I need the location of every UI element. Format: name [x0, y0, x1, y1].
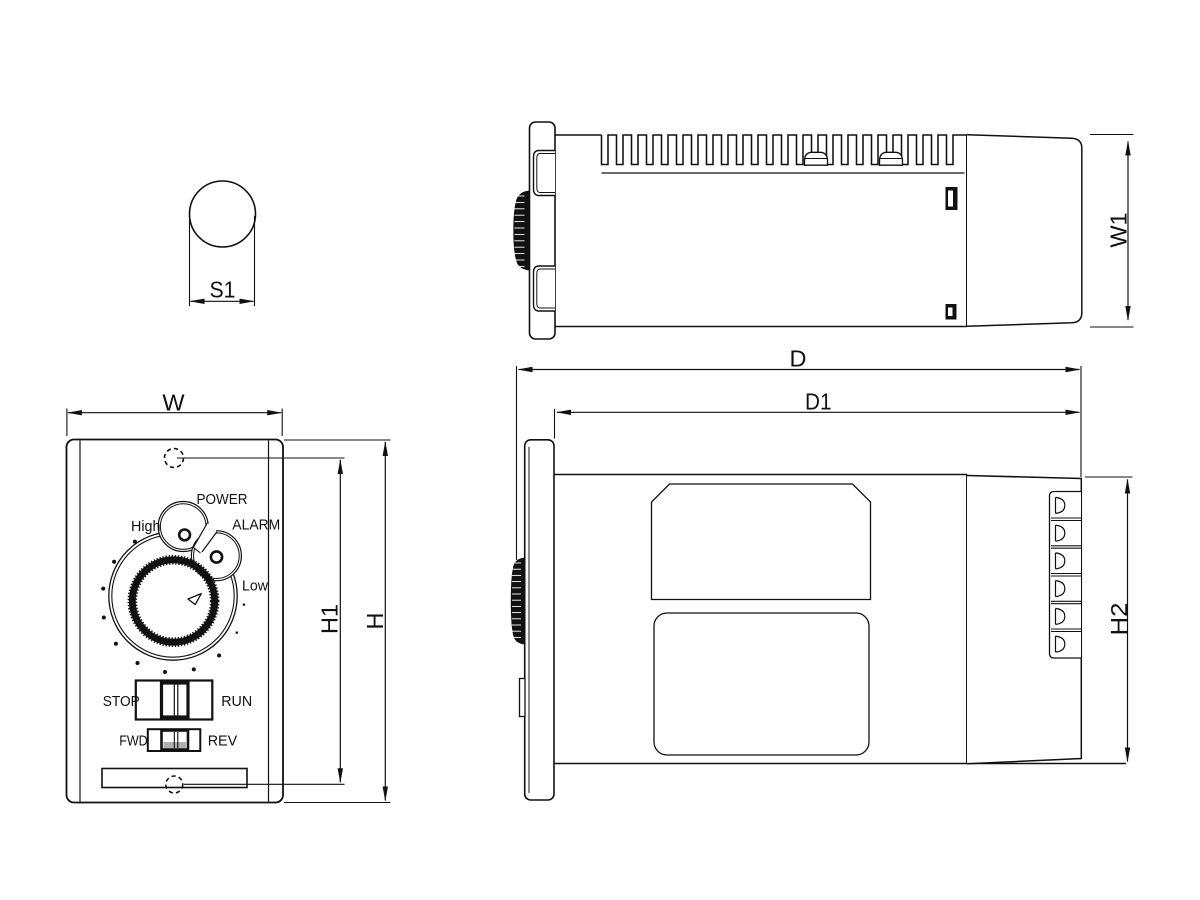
svg-text:H2: H2: [1106, 603, 1132, 636]
svg-text:STOP: STOP: [103, 693, 140, 710]
svg-text:FWD: FWD: [119, 733, 148, 750]
svg-text:H: H: [362, 613, 388, 630]
svg-text:High: High: [131, 518, 161, 535]
svg-text:W1: W1: [1106, 212, 1132, 247]
svg-text:H1: H1: [317, 604, 343, 634]
svg-text:D1: D1: [805, 389, 832, 415]
svg-text:REV: REV: [208, 733, 238, 750]
svg-text:Low: Low: [242, 578, 268, 595]
svg-text:ALARM: ALARM: [232, 516, 280, 533]
svg-text:S1: S1: [210, 277, 236, 303]
svg-text:D: D: [790, 345, 807, 371]
svg-text:POWER: POWER: [197, 491, 248, 508]
svg-text:RUN: RUN: [221, 693, 252, 710]
svg-text:W: W: [162, 389, 185, 415]
